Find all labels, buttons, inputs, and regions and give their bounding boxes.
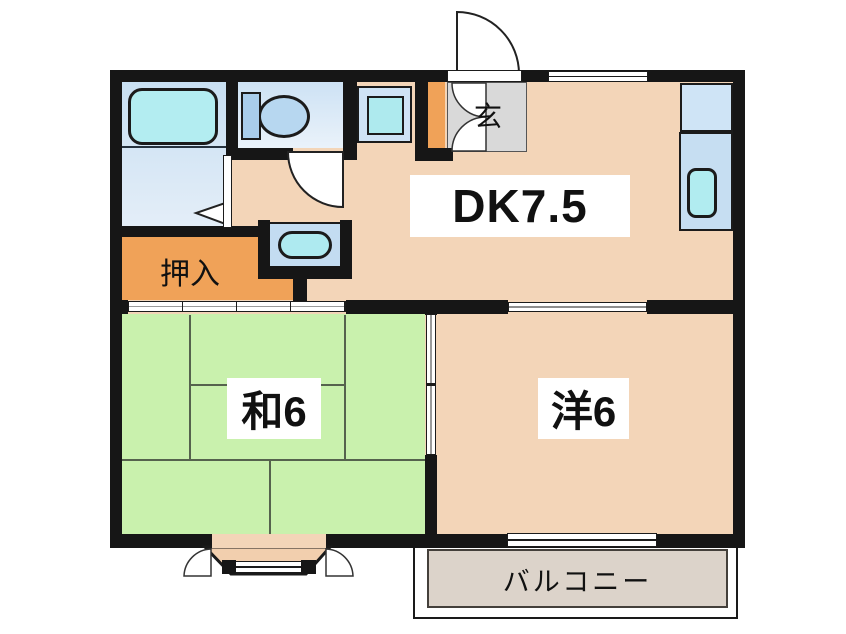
- bathroom-divider-line: [122, 146, 226, 148]
- toilet-tank-icon: [241, 92, 261, 140]
- room-label-entrance: 玄: [468, 96, 508, 134]
- window-icon-bay: [230, 561, 307, 573]
- wall-segment: [343, 82, 357, 160]
- wall-segment: [415, 148, 453, 161]
- room-label-japanese-room: 和6: [227, 378, 321, 439]
- window-icon-top: [548, 71, 648, 82]
- washing-machine-space-icon: [357, 86, 412, 143]
- wall-segment: [293, 279, 307, 301]
- room-label-dk: DK7.5: [410, 175, 630, 237]
- bay-window-post: [222, 560, 236, 574]
- wall-segment: [258, 266, 352, 279]
- toilet-icon: [258, 95, 310, 138]
- shoe-cabinet-icon: [428, 82, 445, 148]
- bay-wing-right-icon: [326, 549, 353, 576]
- tatami-line: [189, 315, 191, 460]
- washing-machine-pan-icon: [367, 96, 404, 135]
- wall-segment: [226, 148, 293, 160]
- tatami-line: [344, 315, 346, 460]
- bathtub-icon: [128, 88, 218, 145]
- entrance-threshold: [447, 70, 522, 82]
- bay-window-post: [301, 560, 316, 574]
- wall-segment: [425, 455, 437, 548]
- room-label-western-room: 洋6: [538, 378, 629, 439]
- sliding-door-icon-fusuma: [128, 301, 346, 312]
- wall-segment: [647, 300, 733, 314]
- bay-window-opening: [212, 534, 326, 548]
- kitchen-sink-icon: [687, 168, 717, 218]
- washbasin-icon: [278, 231, 332, 259]
- room-label-closet: 押入: [137, 252, 243, 290]
- window-icon-balcony: [507, 533, 657, 547]
- sliding-door-icon-dk: [508, 302, 647, 312]
- bathroom-door: [223, 155, 232, 228]
- entrance-door-arc-icon: [457, 12, 519, 74]
- room-label-balcony: バルコニー: [427, 560, 728, 598]
- kitchen-counter-upper-icon: [680, 83, 733, 132]
- wall-segment: [110, 226, 258, 237]
- sliding-door-icon-rooms: [426, 314, 436, 455]
- wall-segment: [415, 82, 428, 148]
- wall-segment: [425, 300, 437, 315]
- wall-segment: [340, 220, 352, 279]
- wall-segment: [226, 82, 238, 158]
- closet-area-step: [258, 279, 293, 300]
- tatami-line: [122, 459, 425, 461]
- bay-wing-left-icon: [184, 549, 211, 576]
- tatami-line: [269, 461, 271, 534]
